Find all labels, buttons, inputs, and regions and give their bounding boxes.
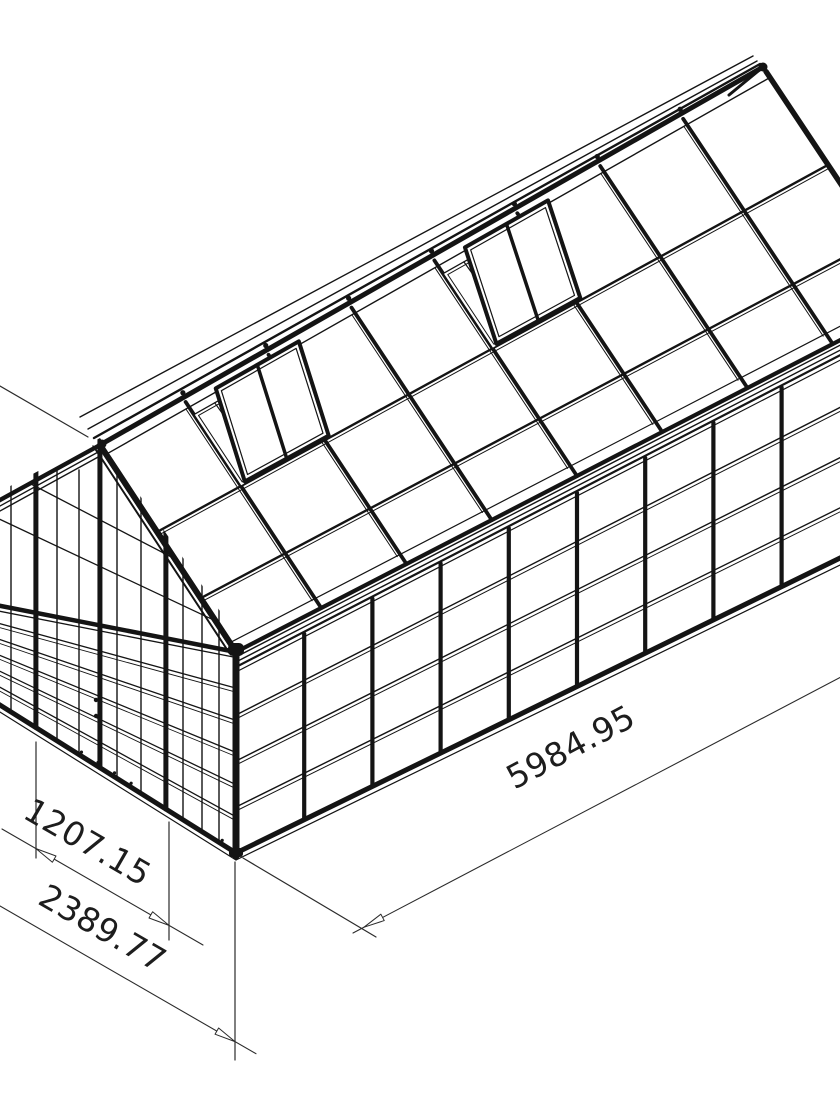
roof-vents: [194, 200, 580, 486]
technical-drawing-canvas: 1207.15 2389.77 5984.95: [0, 0, 840, 1120]
gutter-end-cap: [228, 643, 244, 656]
far-roof-slope-lines: [80, 56, 763, 438]
dimension-label-gable-width: 2389.77: [32, 876, 173, 980]
dimension-labels: 1207.15 2389.77 5984.95: [17, 697, 641, 980]
greenhouse-wireframe: [0, 56, 840, 1060]
corner-foot: [229, 848, 243, 857]
greenhouse-isometric-drawing: 1207.15 2389.77 5984.95: [0, 0, 840, 1120]
